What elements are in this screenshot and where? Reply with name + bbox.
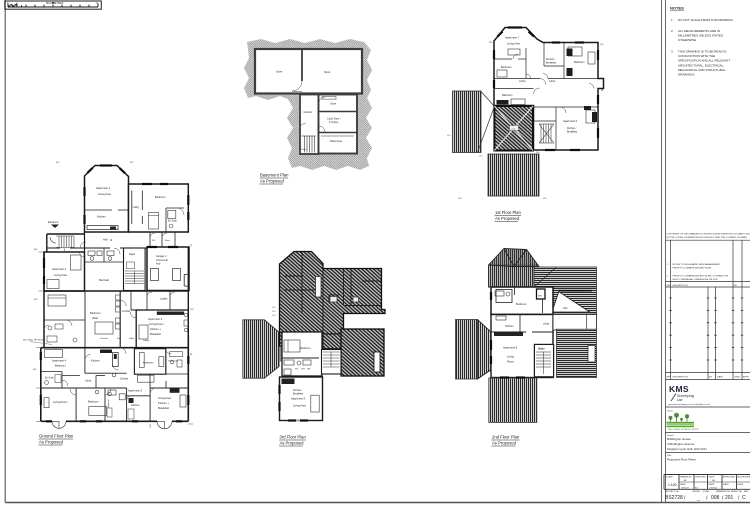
svg-text:Living Area: Living Area [158, 396, 171, 400]
svg-text:Corridor: Corridor [120, 378, 129, 381]
svg-text:Corridor: Corridor [304, 111, 313, 114]
svg-text:Plant Area: Plant Area [330, 139, 343, 143]
svg-text:3.: 3. [671, 50, 674, 54]
svg-text:Kitchen: Kitchen [505, 324, 514, 328]
svg-text:Bedroom: Bedroom [143, 361, 154, 365]
svg-text:CHECKED: CHECKED [695, 477, 706, 479]
svg-text:ZONE: ZONE [703, 491, 710, 493]
svg-text:Kingston upon Hull, HU2 0DU: Kingston upon Hull, HU2 0DU [667, 447, 707, 451]
svg-text:DRAWN BY: DRAWN BY [680, 476, 692, 479]
svg-text:Communal: Communal [156, 259, 168, 262]
svg-text:201: 201 [725, 495, 734, 501]
svg-text:Bedroom: Bedroom [90, 311, 101, 315]
svg-text:Breakfast: Breakfast [150, 332, 161, 336]
svg-text:DATE: DATE [680, 483, 686, 486]
svg-text:Breakfast: Breakfast [546, 61, 556, 64]
svg-text:APPROVED: APPROVED [723, 476, 736, 479]
svg-text:PRIOR TO COMMENCING ANY WORK,: PRIOR TO COMMENCING ANY WORK, CONTRACTOR [673, 275, 729, 278]
svg-text:008: 008 [711, 495, 720, 501]
svg-text:PRIOR TO COMMENCING ANY WORK: PRIOR TO COMMENCING ANY WORK [673, 267, 712, 270]
svg-text:Lobby: Lobby [143, 340, 150, 342]
svg-text:WC: WC [152, 240, 156, 242]
svg-text:Kitchen +: Kitchen + [158, 401, 169, 405]
svg-text:Bathroom: Bathroom [502, 94, 512, 97]
svg-text:Kitchen: Kitchen [131, 403, 140, 407]
svg-text:NOTES TO DESIGNATED NEW MANAGE: NOTES TO DESIGNATED NEW MANAGEMENT [673, 263, 721, 266]
svg-text:C: C [742, 495, 746, 501]
svg-text:WR: WR [538, 296, 542, 298]
svg-text:KMS: KMS [669, 384, 689, 394]
svg-text:4 Bridlington Avenue: 4 Bridlington Avenue [667, 442, 695, 446]
svg-text:New Robe PH Window: New Robe PH Window [23, 340, 46, 342]
svg-text:Garage 1 /: Garage 1 / [156, 255, 168, 258]
svg-text:APPD: APPD [743, 376, 749, 379]
svg-text:DESCRIPTION: DESCRIPTION [673, 285, 688, 287]
svg-text:Apartment 2: Apartment 2 [52, 267, 67, 271]
svg-text:Bathroom: Bathroom [107, 398, 110, 408]
svg-text:_: _ [696, 496, 700, 502]
svg-text:Living Area: Living Area [293, 404, 306, 408]
svg-text:Lobby: Lobby [549, 80, 556, 83]
svg-text:DRAWING No: DRAWING No [716, 490, 731, 493]
svg-text:Bedroom: Bedroom [516, 302, 527, 306]
svg-text:Hall: Hall [103, 238, 108, 242]
svg-text:Lobby: Lobby [519, 80, 526, 83]
svg-text:Stairs: Stairs [129, 253, 136, 256]
svg-text:COPYRIGHT OF THIS DRAWING IS V: COPYRIGHT OF THIS DRAWING IS VESTED IN K… [667, 233, 750, 236]
svg-text:As Proposed: As Proposed [280, 441, 305, 446]
svg-text:ALL MEASUREMENTS ARE IN: ALL MEASUREMENTS ARE IN [678, 29, 720, 33]
svg-text:MILLIMETRES UNLESS STATED: MILLIMETRES UNLESS STATED [678, 34, 724, 38]
svg-text:ORIGIN: ORIGIN [692, 491, 700, 493]
svg-text:As Proposed: As Proposed [39, 440, 64, 445]
svg-text:Proposed Floor Plans: Proposed Floor Plans [667, 458, 696, 462]
svg-text:DATE: DATE [723, 483, 729, 486]
svg-text:Store: Store [276, 70, 283, 74]
svg-text:As Proposed: As Proposed [260, 179, 285, 184]
svg-text:Lobby: Lobby [85, 381, 92, 383]
svg-text:MUST CONFIRM ALL DIMENSIONS ON: MUST CONFIRM ALL DIMENSIONS ON SITE [673, 278, 719, 281]
svg-text:Bed Hall: Bed Hall [99, 278, 109, 282]
svg-text:1st Floor Plan: 1st Floor Plan [495, 210, 522, 215]
svg-text:Bedroom: Bedroom [88, 400, 99, 404]
svg-text:03/2022: 03/2022 [681, 487, 690, 489]
svg-text:DATE: DATE [738, 483, 744, 486]
svg-text:Breakfast: Breakfast [158, 406, 169, 410]
svg-text:Entrance: Entrance [48, 220, 59, 224]
svg-text:DO NOT SCALE FROM THIS DRAWING: DO NOT SCALE FROM THIS DRAWING. [678, 18, 734, 22]
svg-text:As Proposed: As Proposed [495, 216, 520, 221]
svg-text:3rd Floor Plan: 3rd Floor Plan [280, 435, 307, 440]
svg-text:Bedroom: Bedroom [574, 60, 585, 64]
svg-text:www.kmssurveying.co.uk | inf: www.kmssurveying.co.uk | info@kms.co.uk [668, 403, 711, 406]
svg-text:Hub: Hub [156, 263, 161, 266]
svg-text:1.: 1. [671, 18, 674, 22]
svg-text:Kitchen: Kitchen [97, 215, 106, 219]
svg-text:BS2728: BS2728 [665, 495, 683, 501]
svg-text:CHKD: CHKD [734, 377, 741, 379]
svg-text:Larder: Larder [160, 297, 168, 301]
svg-text:DATE: DATE [717, 376, 723, 379]
svg-text:Bedroom: Bedroom [155, 195, 166, 199]
svg-text:DATE: DATE [709, 483, 715, 486]
svg-text:DATE: DATE [709, 476, 715, 479]
svg-text:Living Room: Living Room [53, 400, 67, 404]
svg-text:REV: REV [667, 285, 672, 287]
svg-text:Living Area: Living Area [507, 42, 520, 46]
svg-text:MECHANICAL AND STRUCTURAL: MECHANICAL AND STRUCTURAL [678, 68, 726, 72]
svg-text:Corridor: Corridor [100, 337, 108, 340]
svg-text:Stairs: Stairs [301, 148, 307, 151]
svg-text:1:100: 1:100 [668, 483, 677, 487]
svg-text:DRAWINGS.: DRAWINGS. [678, 73, 695, 77]
svg-text:THIS DRAWING IS TO BE READ IN: THIS DRAWING IS TO BE READ IN [678, 50, 726, 54]
svg-text:En-Suite: En-Suite [168, 220, 178, 223]
svg-text:Breakfast: Breakfast [567, 130, 577, 133]
svg-text:Apartment 6: Apartment 6 [563, 119, 578, 123]
svg-text:Living: Living [507, 355, 514, 359]
svg-text:Kitchen: Kitchen [91, 359, 100, 363]
svg-text:Breakfast: Breakfast [293, 392, 303, 395]
svg-text:Stairs: Stairs [538, 348, 545, 351]
svg-text:Utility: Utility [129, 337, 135, 340]
svg-text:Store: Store [330, 102, 337, 106]
svg-text:Apartment 3: Apartment 3 [148, 317, 163, 321]
svg-text:Living Area: Living Area [98, 192, 111, 196]
svg-text:(Flat): (Flat) [92, 316, 98, 320]
svg-text:Apartment 7: Apartment 7 [505, 36, 520, 40]
svg-text:REV: REV [744, 491, 749, 493]
svg-text:Ltd: Ltd [677, 398, 683, 402]
svg-text:Store: Store [324, 70, 331, 74]
svg-text:Living Area: Living Area [54, 273, 67, 277]
svg-text:As Proposed: As Proposed [492, 441, 517, 446]
svg-text:En-Suite: En-Suite [45, 377, 55, 380]
svg-text:Apartment 5: Apartment 5 [291, 397, 306, 401]
svg-text:MILLIMETRES: MILLIMETRES [46, 1, 64, 5]
svg-text:CONJUNCTION WITH THE: CONJUNCTION WITH THE [678, 54, 715, 58]
svg-text:DESCRIPTION: DESCRIPTION [673, 377, 688, 379]
svg-text:OTHERWISE.: OTHERWISE. [678, 38, 697, 42]
svg-text:2nd Floor Plan: 2nd Floor Plan [492, 435, 520, 440]
svg-text:Room: Room [507, 360, 514, 364]
svg-text:THE GREEN ESTATES GROUP: THE GREEN ESTATES GROUP [668, 428, 700, 431]
svg-text:Ground Floor Plan: Ground Floor Plan [39, 434, 74, 439]
svg-text:Apartment 1: Apartment 1 [96, 186, 111, 190]
svg-text:Client: Client [667, 410, 673, 413]
svg-text:ARCHITECTURAL, ELECTRICAL,: ARCHITECTURAL, ELECTRICAL, [678, 63, 724, 67]
svg-text:SCALE: SCALE [666, 476, 674, 479]
svg-text:Bedroom: Bedroom [55, 364, 66, 368]
svg-text:SPECIFICATION AND ALL RELEVANT: SPECIFICATION AND ALL RELEVANT [678, 59, 730, 63]
svg-text:Apartment 4: Apartment 4 [52, 359, 67, 363]
svg-text:Lobby: Lobby [543, 324, 550, 326]
svg-text:SHEET No: SHEET No [731, 491, 742, 493]
svg-text:2.: 2. [671, 29, 674, 33]
svg-text:WC: WC [295, 369, 299, 371]
svg-text:Hub: Hub [563, 307, 568, 310]
svg-text:9 Cycles: 9 Cycles [329, 121, 339, 124]
svg-text:PROJECT No: PROJECT No [665, 491, 679, 493]
svg-text:Corridor: Corridor [122, 310, 131, 313]
svg-text:03/2022: 03/2022 [710, 487, 719, 489]
svg-text:Basement Plan: Basement Plan [260, 173, 289, 178]
svg-text:NOTES: NOTES [670, 6, 684, 11]
svg-text:Apartment 5: Apartment 5 [128, 389, 143, 393]
svg-text:Bridlington House: Bridlington House [667, 437, 691, 441]
svg-text:NOT BE COPIED OR REPRODUCED WI: NOT BE COPIED OR REPRODUCED WITHOUT WRIT… [667, 237, 748, 239]
svg-text:Kitchen +: Kitchen + [150, 327, 161, 331]
svg-text:REV: REV [667, 377, 672, 379]
svg-text:Lobby: Lobby [133, 207, 140, 209]
svg-text:Bedroom: Bedroom [501, 65, 512, 69]
svg-text:Bedroom: Bedroom [300, 346, 311, 350]
svg-text:Living Room: Living Room [149, 322, 163, 326]
svg-text:WR: WR [307, 369, 311, 371]
svg-text:Apartment 8: Apartment 8 [503, 346, 518, 350]
svg-text:AUTHORISED: AUTHORISED [738, 476, 750, 479]
